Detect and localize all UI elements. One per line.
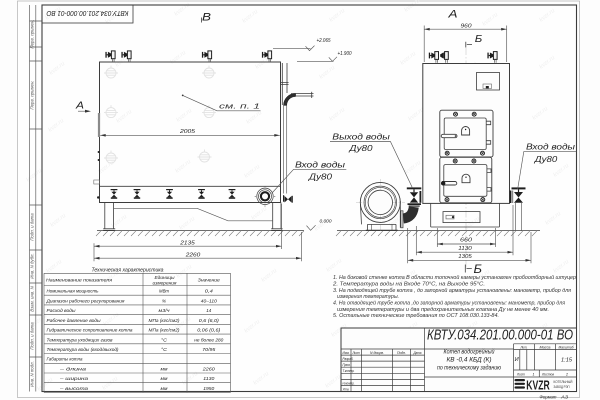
svg-text:Гидравлическое сопротивление к: Гидравлическое сопротивление котла <box>47 328 133 334</box>
svg-text:Масштаб: Масштаб <box>559 344 575 349</box>
svg-text:+1.900: +1.900 <box>338 51 352 57</box>
svg-text:5. Остальные технические треб: 5. Остальные технические требования по О… <box>333 313 499 319</box>
svg-text:– высота: – высота <box>59 387 89 392</box>
svg-text:2260: 2260 <box>185 252 201 258</box>
svg-text:2135: 2135 <box>179 240 196 246</box>
svg-text:%: % <box>162 298 166 303</box>
svg-text:мм: мм <box>161 386 169 391</box>
svg-text:не более 280: не более 280 <box>194 337 223 342</box>
svg-text:1130: 1130 <box>203 376 214 381</box>
svg-text:70/95: 70/95 <box>202 347 215 352</box>
svg-text:Изм.: Изм. <box>343 351 350 355</box>
svg-text:МВт: МВт <box>159 289 169 294</box>
svg-text:0,4: 0,4 <box>205 289 213 294</box>
svg-text:Температура воды (вход/выход): Температура воды (вход/выход) <box>47 347 119 353</box>
svg-text:Т.контр.: Т.контр. <box>343 368 355 373</box>
svg-text:по техническому заданию: по техническому заданию <box>437 366 501 372</box>
svg-text:40–110: 40–110 <box>201 298 217 303</box>
svg-text:4. На отводящей трубе котла ,: 4. На отводящей трубе котла ,до запорной… <box>333 300 565 307</box>
svg-text:Вход воды: Вход воды <box>526 143 575 152</box>
svg-text:Расход воды: Расход воды <box>47 308 76 314</box>
svg-text:Инв. N подл.: Инв. N подл. <box>30 361 35 387</box>
svg-text:Ду80: Ду80 <box>534 155 558 164</box>
svg-text:Ду80: Ду80 <box>348 144 373 153</box>
svg-text:А: А <box>447 9 457 21</box>
svg-text:960: 960 <box>461 24 472 30</box>
svg-text:мм: мм <box>161 367 169 372</box>
svg-text:°С: °С <box>161 337 168 342</box>
svg-text:Лит.: Лит. <box>520 344 528 349</box>
svg-text:Выход воды: Выход воды <box>332 133 390 142</box>
svg-text:Вход воды: Вход воды <box>295 160 345 169</box>
svg-text:МПа (кгс/см2): МПа (кгс/см2) <box>149 328 180 333</box>
svg-text:Формат: Формат <box>540 394 557 399</box>
svg-text:Температура уходящих газов: Температура уходящих газов <box>47 337 113 343</box>
svg-text:Подп. и дата: Подп. и дата <box>30 322 35 350</box>
svg-text:Техническая характеристика: Техническая характеристика <box>92 267 164 273</box>
svg-text:А3: А3 <box>560 394 569 399</box>
svg-text:Подп.: Подп. <box>397 351 406 355</box>
svg-text:Ду80: Ду80 <box>308 173 333 182</box>
svg-text:1130: 1130 <box>458 246 472 252</box>
svg-text:660: 660 <box>460 238 472 244</box>
svg-text:0,06 (0,6): 0,06 (0,6) <box>197 328 220 333</box>
svg-text:КВТУ.034.201.00.000-01 ВО: КВТУ.034.201.00.000-01 ВО <box>427 326 573 343</box>
svg-text:МПа (кгс/см2): МПа (кгс/см2) <box>149 318 180 323</box>
svg-text:Котел водогрейный: Котел водогрейный <box>444 349 496 356</box>
svg-text:м3/ч: м3/ч <box>159 308 171 313</box>
svg-text:измерения температуры.: измерения температуры. <box>337 294 399 300</box>
svg-text:1. На боковой стенке котла В: 1. На боковой стенке котла В области топ… <box>333 274 576 281</box>
svg-text:Перв. примен.: Перв. примен. <box>30 80 35 109</box>
svg-text:Перв. примен.: Перв. примен. <box>30 19 35 48</box>
svg-text:Единицы: Единицы <box>155 275 176 280</box>
svg-text:Утв.: Утв. <box>343 386 350 391</box>
svg-text:КВТУ.034.201.00.000-01 ВО: КВТУ.034.201.00.000-01 ВО <box>46 9 129 16</box>
svg-text:Инв. N дубл.: Инв. N дубл. <box>30 253 35 278</box>
svg-text:2260: 2260 <box>202 367 216 372</box>
svg-text:1305: 1305 <box>458 254 473 260</box>
svg-text:Разраб.: Разраб. <box>343 356 354 361</box>
svg-text:Лист: Лист <box>516 372 525 377</box>
svg-text:Дата: Дата <box>413 351 422 355</box>
svg-text:Взам. инв. N: Взам. инв. N <box>30 285 35 311</box>
svg-text:N докум.: N докум. <box>370 351 384 355</box>
svg-text:КВ -0,4 КБД (К): КВ -0,4 КБД (К) <box>447 358 492 364</box>
svg-text:1:15: 1:15 <box>561 358 573 364</box>
svg-text:14: 14 <box>206 308 211 313</box>
svg-text:Диапазон рабочего регулировани: Диапазон рабочего регулирования <box>46 298 125 304</box>
svg-text:+2.065: +2.065 <box>317 38 331 44</box>
svg-text:Масса: Масса <box>540 344 552 349</box>
svg-text:Номинальная мощность: Номинальная мощность <box>47 289 99 295</box>
svg-text:Рабочее давление воды: Рабочее давление воды <box>47 318 101 324</box>
svg-text:мм: мм <box>161 376 169 381</box>
svg-text:И: И <box>515 357 519 363</box>
svg-text:см. п. 1: см. п. 1 <box>219 102 260 111</box>
svg-text:0.000: 0.000 <box>320 218 332 224</box>
svg-text:KVZR: KVZR <box>526 378 550 393</box>
svg-text:В: В <box>202 12 211 24</box>
svg-text:А: А <box>75 100 84 112</box>
svg-text:Подп. и дата: Подп. и дата <box>30 213 35 241</box>
svg-text:Б: Б <box>474 264 483 276</box>
svg-text:Пров.: Пров. <box>343 362 351 367</box>
svg-text:°С: °С <box>161 347 168 352</box>
svg-text:измерения: измерения <box>153 280 178 285</box>
svg-text:Листов: Листов <box>541 372 554 377</box>
svg-text:– ширина: – ширина <box>59 377 89 382</box>
svg-text:1950: 1950 <box>203 386 214 391</box>
svg-text:2005: 2005 <box>179 129 196 135</box>
svg-text:Лист: Лист <box>352 351 360 355</box>
svg-text:– длина: – длина <box>59 367 87 373</box>
svg-text:КОТЕЛЬНЫЙ: КОТЕЛЬНЫЙ <box>554 380 573 384</box>
svg-text:Н.контр.: Н.контр. <box>343 380 355 385</box>
svg-text:измерения температуры и два пр: измерения температуры и два предохраните… <box>337 307 549 313</box>
svg-text:Наименование показателя: Наименование показателя <box>46 278 112 284</box>
svg-text:Габариты котла: Габариты котла <box>47 357 83 363</box>
svg-text:1: 1 <box>533 372 535 377</box>
svg-text:2. Температура воды на Входе: 2. Температура воды на Входе 70°С, на Вы… <box>332 282 485 288</box>
svg-text:0,6 (6,0): 0,6 (6,0) <box>199 318 219 323</box>
svg-text:Значение: Значение <box>198 278 220 284</box>
svg-text:Б: Б <box>475 34 483 45</box>
svg-text:ЗАВОД РЭП: ЗАВОД РЭП <box>554 385 570 389</box>
